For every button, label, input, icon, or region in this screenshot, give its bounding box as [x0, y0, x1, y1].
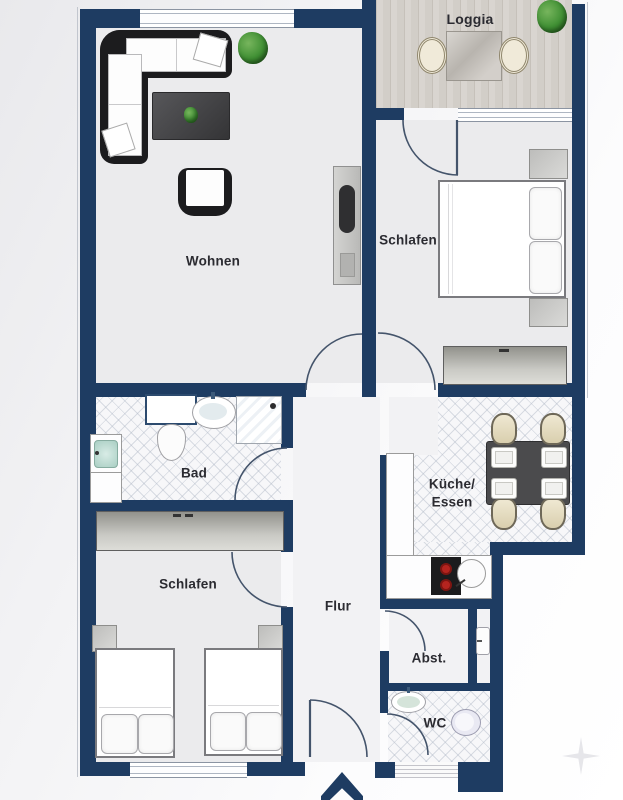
flur-floor	[293, 397, 380, 762]
room-label-wohnen: Wohnen	[186, 254, 240, 269]
dining-seat	[541, 447, 567, 468]
room-label-loggia: Loggia	[446, 11, 493, 27]
wc-toilet-seat	[455, 713, 474, 731]
dining-chair	[540, 498, 566, 530]
room-label-wc: WC	[424, 716, 447, 731]
wall-horizontal-main-right	[438, 383, 585, 397]
nightstand	[529, 149, 568, 179]
wall-left	[80, 26, 96, 776]
sideboard-drawer	[340, 253, 355, 277]
pillow	[529, 187, 562, 240]
wohnen-window	[140, 9, 294, 28]
wall-right-mid	[572, 397, 585, 555]
loggia-chair-right	[499, 37, 529, 74]
plant-coffee-table	[184, 107, 198, 123]
duvet-fold	[448, 184, 449, 294]
wardrobe-handle	[499, 349, 509, 352]
wall-top-corner	[80, 9, 140, 28]
loggia-chair-left	[417, 37, 447, 74]
loggia-table	[446, 31, 502, 81]
armchair-seat	[186, 170, 224, 206]
wall-kueche-step	[490, 542, 585, 555]
schlafen-top-window	[458, 108, 572, 122]
wall-bottom-mid	[247, 762, 305, 776]
kitchen-sink	[457, 559, 486, 588]
wall-wc-left	[380, 691, 388, 713]
nightstand	[529, 298, 568, 327]
pillow	[246, 712, 282, 751]
flur-passage-floor	[389, 397, 438, 455]
room-label-kueche-line2: Essen	[432, 495, 473, 510]
plant-loggia	[537, 0, 567, 33]
wc-sink-faucet	[407, 687, 410, 693]
dining-chair	[540, 413, 566, 445]
bath-cabinet	[90, 472, 122, 503]
wardrobe-schlafen-top	[443, 346, 567, 385]
coffee-table	[152, 92, 230, 140]
plant-wohnen	[238, 32, 268, 64]
shower	[236, 396, 282, 444]
wall-abst-wc	[380, 683, 490, 691]
wardrobe-handle	[173, 514, 181, 517]
room-label-abst: Abst.	[412, 651, 447, 666]
shaft-hatch	[476, 627, 490, 655]
schlafen-bottom-window	[130, 762, 247, 778]
stove-burner	[440, 579, 452, 591]
tv-sideboard	[333, 166, 361, 285]
dining-seat	[541, 478, 567, 499]
bad-sink-basin	[199, 403, 227, 420]
single-bed-right	[204, 648, 283, 756]
room-label-flur: Flur	[325, 599, 351, 614]
floor-plan: Loggia Wohnen Schlafen Bad Küche/ Essen …	[0, 0, 623, 800]
room-label-bad: Bad	[181, 466, 207, 481]
abst-floor	[389, 609, 468, 683]
tv-screen	[339, 185, 355, 233]
wall-bad-right	[281, 397, 293, 448]
bad-sink-faucet	[211, 392, 215, 399]
dining-seat	[491, 478, 517, 499]
pillow	[101, 714, 138, 754]
outer-contour-left	[77, 7, 78, 777]
compass-star-icon	[562, 737, 600, 775]
wall-divider-wohnen-schlafen	[362, 0, 376, 397]
pillow	[210, 712, 246, 751]
wardrobe-handle	[185, 514, 193, 517]
dining-chair	[491, 498, 517, 530]
bad-sink	[192, 396, 236, 429]
dining-chair	[491, 413, 517, 445]
shaft-hatch-handle	[477, 640, 482, 642]
duvet-fold2	[452, 184, 453, 294]
duvet-fold	[99, 707, 171, 708]
wall-bottom-left-corner	[80, 762, 130, 776]
room-label-kueche-line1: Küche/	[429, 477, 475, 492]
toilet-cistern	[145, 394, 197, 425]
washing-machine	[90, 434, 122, 473]
entrance-arrow	[321, 772, 363, 800]
wc-toilet	[451, 709, 481, 736]
armchair	[178, 168, 232, 216]
washer-knob	[95, 451, 99, 455]
kitchen-counter-left	[386, 453, 414, 557]
wc-sink-basin	[397, 696, 420, 708]
stove-burner	[440, 563, 452, 575]
wall-abst-left	[380, 651, 389, 683]
wall-right-upper	[572, 4, 585, 397]
dining-seat	[491, 447, 517, 468]
double-bed	[438, 180, 566, 298]
wall-loggia-left	[376, 108, 404, 120]
wall-top-right	[294, 9, 366, 28]
wc-sink	[391, 691, 426, 713]
pillow	[138, 714, 174, 754]
room-label-schlafen-bottom: Schlafen	[159, 577, 217, 592]
steps-landing	[395, 762, 458, 778]
single-bed-left	[95, 648, 175, 758]
outer-contour-right	[587, 2, 588, 398]
pillow	[529, 241, 562, 294]
wardrobe-schlafen-bottom	[96, 511, 284, 551]
wall-bottom-entry-post	[375, 762, 395, 778]
room-label-schlafen-top: Schlafen	[379, 233, 437, 248]
duvet-fold	[208, 705, 279, 706]
shower-drain	[270, 403, 276, 409]
